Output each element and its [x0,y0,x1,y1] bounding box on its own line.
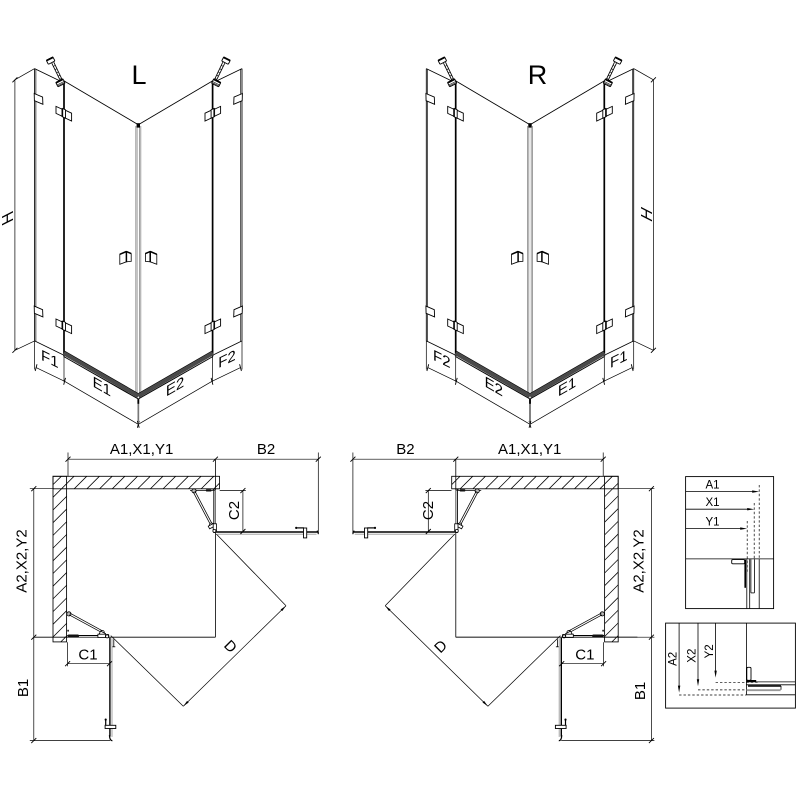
svg-text:C2: C2 [420,501,437,520]
svg-text:B1: B1 [632,682,649,700]
svg-text:Y2: Y2 [704,644,716,658]
svg-text:Y1: Y1 [705,517,719,529]
svg-text:A1,X1,Y1: A1,X1,Y1 [110,441,173,458]
svg-text:B2: B2 [396,441,414,458]
svg-text:B1: B1 [15,679,32,697]
svg-text:L: L [131,60,146,90]
svg-text:A2,X2,Y2: A2,X2,Y2 [631,529,648,592]
svg-text:C2: C2 [226,501,243,520]
svg-text:C1: C1 [575,647,594,664]
svg-text:A1: A1 [705,480,719,492]
svg-text:X1: X1 [705,497,719,509]
svg-text:C1: C1 [78,647,97,664]
svg-text:B2: B2 [257,441,275,458]
svg-text:A2: A2 [668,652,680,666]
svg-text:X2: X2 [687,649,699,663]
svg-text:R: R [528,60,548,90]
svg-text:A1,X1,Y1: A1,X1,Y1 [498,441,561,458]
svg-text:A2,X2,Y2: A2,X2,Y2 [13,529,30,592]
